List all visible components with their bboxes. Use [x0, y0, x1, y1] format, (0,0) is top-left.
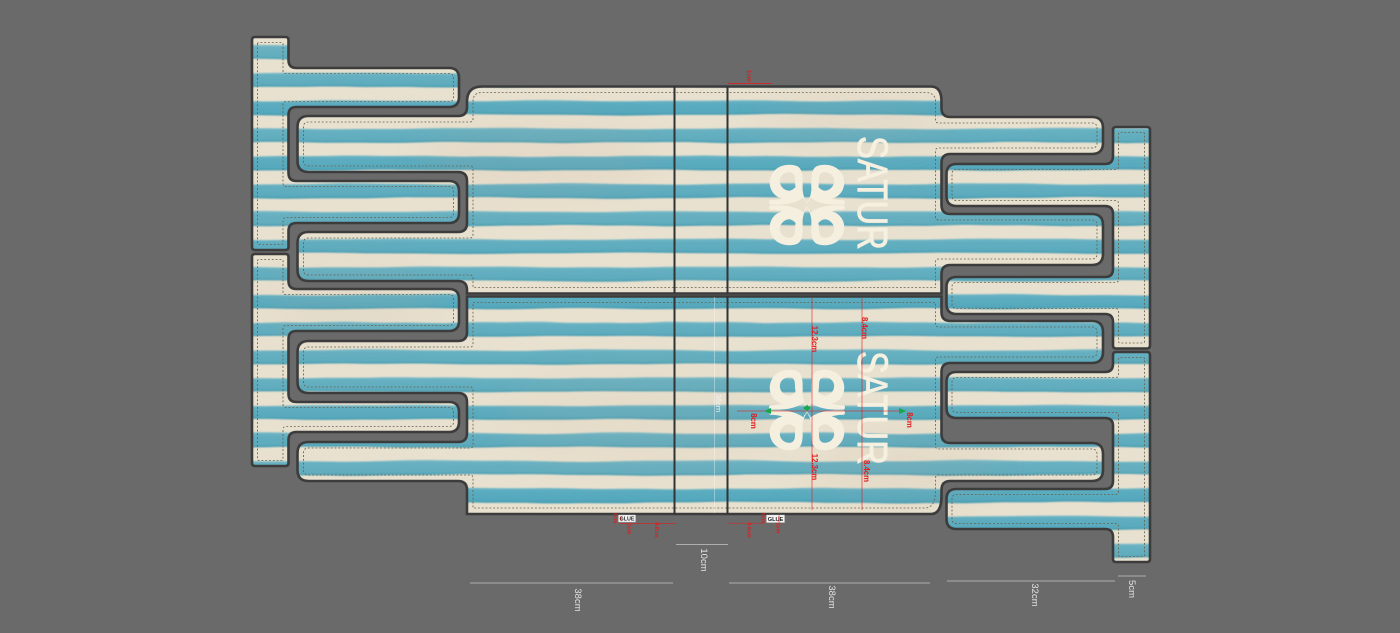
svg-text:SATUR: SATUR — [848, 351, 896, 465]
svg-text:8.4cm: 8.4cm — [862, 460, 871, 482]
svg-text:4.6cm: 4.6cm — [653, 522, 659, 538]
svg-text:5cm: 5cm — [1126, 580, 1137, 598]
svg-text:1cm: 1cm — [745, 70, 751, 82]
svg-text:1cm: 1cm — [775, 522, 781, 533]
svg-text:38cm: 38cm — [572, 588, 583, 611]
svg-text:SATUR: SATUR — [848, 136, 896, 250]
svg-text:32cm: 32cm — [1029, 583, 1040, 606]
svg-text:8.4cm: 8.4cm — [860, 317, 869, 339]
svg-text:1cm: 1cm — [760, 512, 766, 523]
svg-text:12.3cm: 12.3cm — [810, 454, 819, 481]
svg-text:1cm: 1cm — [612, 512, 618, 523]
svg-text:GLUE: GLUE — [620, 517, 635, 523]
svg-text:4.6cm: 4.6cm — [746, 522, 752, 538]
svg-text:38cm: 38cm — [826, 585, 837, 608]
svg-text:8cm: 8cm — [749, 413, 758, 429]
svg-text:10cm: 10cm — [698, 548, 709, 571]
svg-text:1cm: 1cm — [626, 523, 632, 534]
svg-text:36cm: 36cm — [714, 394, 723, 412]
svg-text:8cm: 8cm — [905, 412, 914, 428]
svg-text:12.3cm: 12.3cm — [810, 326, 819, 353]
